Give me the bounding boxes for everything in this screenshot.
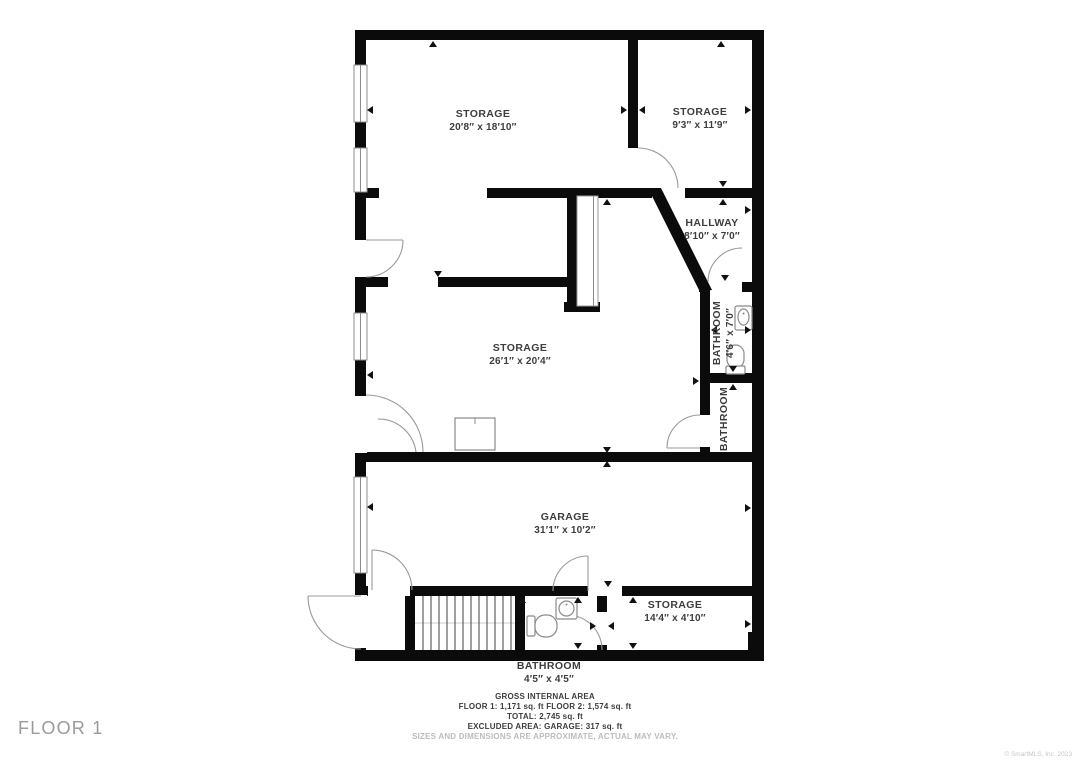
room-label: STORAGE26′1″ x 20′4″ [489,342,550,367]
opening-marker-icon [745,106,751,114]
opening-marker-icon [604,581,612,587]
opening-markers [367,41,751,649]
opening-marker-icon [693,377,699,385]
opening-marker-icon [603,199,611,205]
opening-marker-icon [745,206,751,214]
room-label: STORAGE14′4″ x 4′10″ [644,599,705,624]
opening-marker-icon [719,199,727,205]
opening-marker-icon [719,181,727,187]
window [354,313,367,360]
room-label: BATHROOM4′5″ x 4′5″ [517,660,581,685]
opening-marker-icon [367,106,373,114]
opening-marker-icon [629,597,637,603]
disclaimer: SIZES AND DIMENSIONS ARE APPROXIMATE, AC… [200,732,890,742]
window [354,148,367,192]
room-label: BATHROOM4′6″ x 7′0″ [711,301,736,365]
area-summary: GROSS INTERNAL AREA FLOOR 1: 1,171 sq. f… [200,692,890,742]
opening-marker-icon [629,643,637,649]
opening-marker-icon [639,106,645,114]
window [354,65,367,122]
opening-marker-icon [729,384,737,390]
total-area: TOTAL: 2,745 sq. ft [200,712,890,722]
opening-marker-icon [717,41,725,47]
floorplan-drawing: STORAGE20′8″ x 18′10″STORAGE9′3″ x 11′9″… [0,0,1080,764]
opening-marker-icon [621,106,627,114]
opening-marker-icon [608,622,614,630]
window [354,477,367,573]
toilet [527,615,557,637]
floor-label: FLOOR 1 [18,718,103,739]
opening-marker-icon [574,643,582,649]
room-label: GARAGE31′1″ x 10′2″ [534,511,595,536]
shaft [577,196,598,306]
opening-marker-icon [745,620,751,628]
room-label: STORAGE9′3″ x 11′9″ [672,106,727,131]
room-label: STORAGE20′8″ x 18′10″ [449,108,516,133]
floor-areas: FLOOR 1: 1,171 sq. ft FLOOR 2: 1,574 sq.… [200,702,890,712]
excluded-area: EXCLUDED AREA: GARAGE: 317 sq. ft [200,722,890,732]
room-label: BATHROOM [718,387,730,451]
opening-marker-icon [434,271,442,277]
gross-internal-area-title: GROSS INTERNAL AREA [200,692,890,702]
sink [735,306,752,330]
room-label: HALLWAY8′10″ x 7′0″ [684,217,740,242]
copyright: © SmartMLS, Inc. 2023 [1004,751,1072,758]
utility-box [455,418,495,450]
opening-marker-icon [745,504,751,512]
opening-marker-icon [721,275,729,281]
opening-marker-icon [429,41,437,47]
stairs [415,596,515,650]
sink [556,598,577,619]
opening-marker-icon [367,371,373,379]
opening-marker-icon [367,503,373,511]
